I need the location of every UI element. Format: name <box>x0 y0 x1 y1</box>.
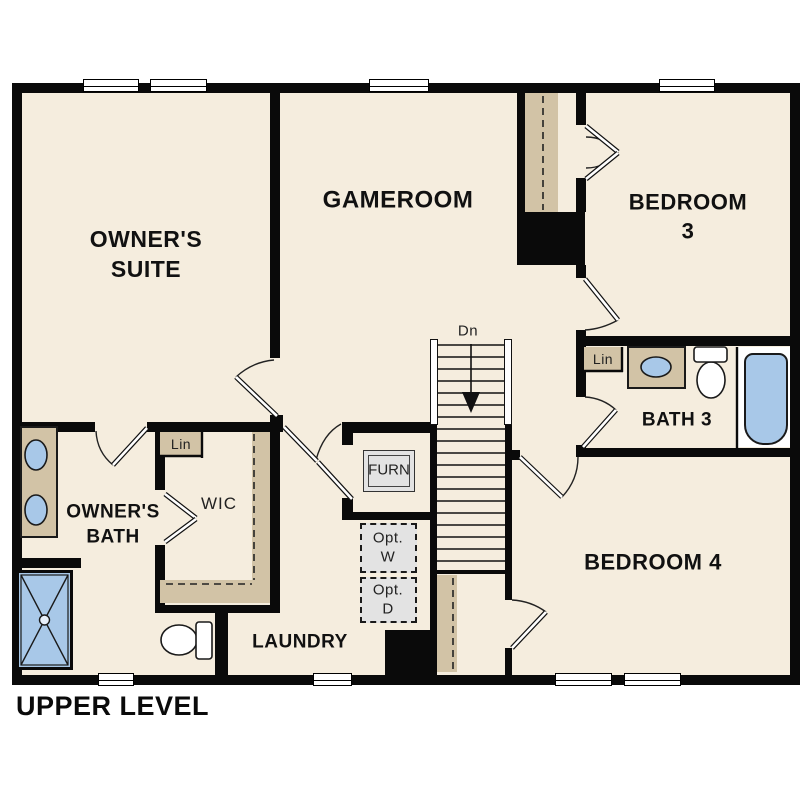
wall <box>342 422 433 433</box>
bathtub-icon <box>744 353 788 445</box>
wall <box>576 265 586 278</box>
wall <box>576 445 586 457</box>
wall <box>14 558 81 568</box>
shower-icon <box>16 570 73 670</box>
wic-shelf-bottom <box>160 580 270 603</box>
bath3-vanity <box>627 346 686 389</box>
room-label-owners-suite: OWNER'S SUITE <box>90 225 202 285</box>
floor-plan: OWNER'S SUITE GAMEROOM BEDROOM 3 BEDROOM… <box>0 0 810 810</box>
wall <box>342 422 353 445</box>
linen-label-owner: Lin <box>171 435 191 453</box>
wall <box>512 450 520 460</box>
wall <box>505 448 512 600</box>
window <box>555 673 612 686</box>
wall <box>576 336 790 346</box>
window <box>150 79 207 92</box>
furnace-label: FURN <box>368 460 410 480</box>
wall <box>350 512 437 520</box>
window <box>659 79 715 92</box>
wall <box>147 422 280 432</box>
room-label-laundry: LAUNDRY <box>252 631 348 656</box>
window <box>369 79 429 92</box>
optional-washer-label: Opt. W <box>373 529 403 567</box>
wic-shelf-right <box>252 432 270 603</box>
window <box>624 673 681 686</box>
room-label-gameroom: GAMEROOM <box>323 184 474 215</box>
window <box>313 673 352 686</box>
window <box>83 79 139 92</box>
linen-label-bath3: Lin <box>593 350 613 368</box>
wall <box>578 448 790 457</box>
room-label-bedroom3: BEDROOM 3 <box>627 188 749 245</box>
wall <box>270 93 280 358</box>
room-label-bath3: BATH 3 <box>642 409 712 434</box>
window <box>98 673 134 686</box>
bedroom3-closet-shelf <box>525 93 558 212</box>
wall <box>437 570 505 574</box>
wall <box>576 178 586 212</box>
room-label-wic: WIC <box>201 493 237 515</box>
wall <box>270 432 280 613</box>
double-vanity <box>20 426 58 538</box>
wall <box>215 605 228 680</box>
room-label-bedroom4: BEDROOM 4 <box>584 549 722 578</box>
room-label-owners-bath: OWNER'S BATH <box>66 500 160 549</box>
wall <box>576 93 586 125</box>
chase-wall <box>517 212 585 265</box>
stairs-down-label: Dn <box>458 321 478 341</box>
optional-dryer-label: Opt. D <box>373 581 403 619</box>
wall <box>505 648 512 675</box>
wall <box>517 93 525 212</box>
plan-title: UPPER LEVEL <box>16 691 209 722</box>
stair-rail <box>430 339 438 425</box>
stair-rail <box>504 339 512 425</box>
bedroom4-closet-shelf <box>437 575 457 672</box>
wall <box>385 630 437 675</box>
